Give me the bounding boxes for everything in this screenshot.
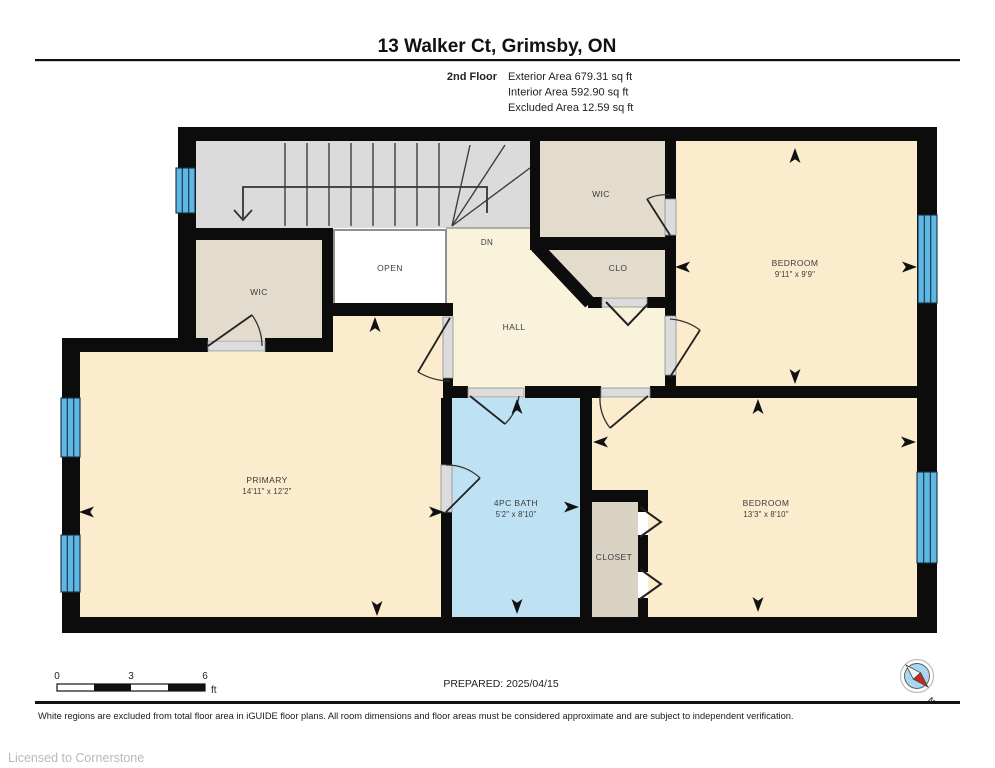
room-dims-bath: 5'2" x 8'10": [496, 510, 537, 519]
north-label: N: [926, 695, 937, 706]
scale-bar-segment: [168, 684, 205, 691]
room-label-open: OPEN: [377, 263, 403, 273]
window: [917, 472, 937, 563]
room-label-primary: PRIMARY: [246, 475, 287, 485]
exterior-area: Exterior Area 679.31 sq ft: [508, 71, 632, 83]
scale-unit: ft: [211, 685, 217, 696]
title-divider: [35, 59, 960, 61]
rooms-layer: [80, 141, 917, 617]
room-label-hall: HALL: [503, 322, 526, 332]
wall: [62, 338, 208, 352]
footer: White regions are excluded from total fl…: [8, 701, 960, 765]
room-label-wic-top: WIC: [592, 189, 610, 199]
window: [61, 398, 80, 457]
wall: [333, 303, 453, 316]
footer-divider: [35, 701, 960, 704]
wall: [650, 386, 937, 398]
window: [918, 215, 937, 303]
room-label-clo: CLO: [609, 263, 628, 273]
window: [61, 535, 80, 592]
room-label-bedroom-2: BEDROOM: [743, 498, 790, 508]
wall: [580, 398, 592, 617]
scale-tick-6: 6: [202, 671, 208, 682]
wall: [441, 512, 452, 617]
window: [176, 168, 195, 213]
prepared-date: PREPARED: 2025/04/15: [443, 678, 559, 690]
floor-plan-svg: 13 Walker Ct, Grimsby, ON 2nd Floor Exte…: [0, 0, 995, 768]
wall: [638, 598, 648, 617]
wall: [441, 398, 452, 465]
interior-area: Interior Area 592.90 sq ft: [508, 87, 628, 99]
wall: [62, 617, 937, 633]
room-label-wic-left: WIC: [250, 287, 268, 297]
wall: [265, 338, 333, 352]
room-label-bath: 4PC BATH: [494, 498, 538, 508]
wall: [443, 386, 468, 398]
scale-tick-0: 0: [54, 671, 60, 682]
wall: [322, 228, 333, 352]
disclaimer: White regions are excluded from total fl…: [38, 711, 794, 721]
room-dims-bedroom-1: 9'11" x 9'9": [775, 270, 815, 279]
room-dims-primary: 14'11" x 12'2": [242, 487, 291, 496]
scale-bar: 0 3 6 ft: [54, 671, 217, 696]
wall: [178, 127, 937, 141]
wall: [588, 297, 602, 308]
wall: [665, 141, 676, 199]
room-label-bedroom-1: BEDROOM: [772, 258, 819, 268]
license: Licensed to Cornerstone: [8, 751, 144, 765]
room-dims-bedroom-2: 13'3" x 8'10": [743, 510, 788, 519]
wall: [665, 235, 676, 317]
wall: [580, 490, 648, 502]
scale-bar-segment: [94, 684, 131, 691]
wall: [530, 237, 676, 250]
room-label-dn: DN: [481, 238, 493, 247]
room-label-closet: CLOSET: [596, 552, 632, 562]
wall: [665, 375, 676, 398]
wall: [178, 228, 333, 240]
floor-plan-page: 13 Walker Ct, Grimsby, ON 2nd Floor Exte…: [0, 0, 995, 768]
floor-label: 2nd Floor: [447, 71, 498, 83]
wall: [525, 386, 601, 398]
scale-tick-3: 3: [128, 671, 134, 682]
wall: [638, 535, 648, 572]
compass-icon: N: [901, 660, 937, 707]
page-title: 13 Walker Ct, Grimsby, ON: [378, 36, 617, 57]
wall: [530, 141, 540, 250]
excluded-area: Excluded Area 12.59 sq ft: [508, 102, 633, 114]
room-primary: [80, 316, 443, 617]
header: 13 Walker Ct, Grimsby, ON 2nd Floor Exte…: [35, 36, 960, 114]
